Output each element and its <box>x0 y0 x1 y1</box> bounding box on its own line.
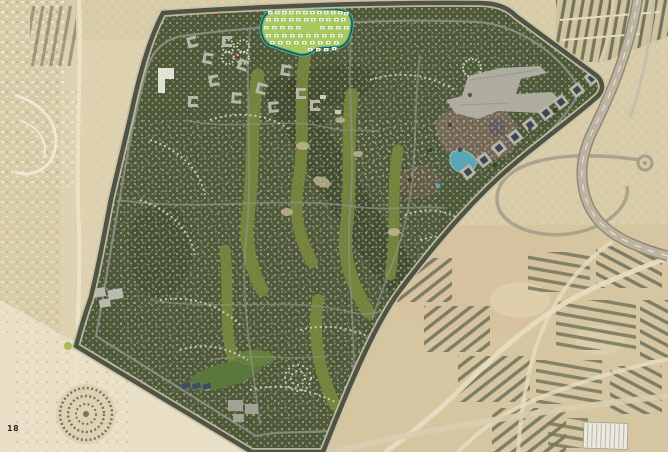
pond <box>436 184 441 189</box>
lawn <box>235 350 275 366</box>
page-number: 18 <box>7 424 19 433</box>
highlighted-parcel <box>261 8 352 55</box>
warehouse <box>583 422 628 450</box>
masterplan-aerial-image: 18 <box>0 0 668 452</box>
corner-green-patch <box>64 342 72 350</box>
ring-community <box>56 384 116 444</box>
